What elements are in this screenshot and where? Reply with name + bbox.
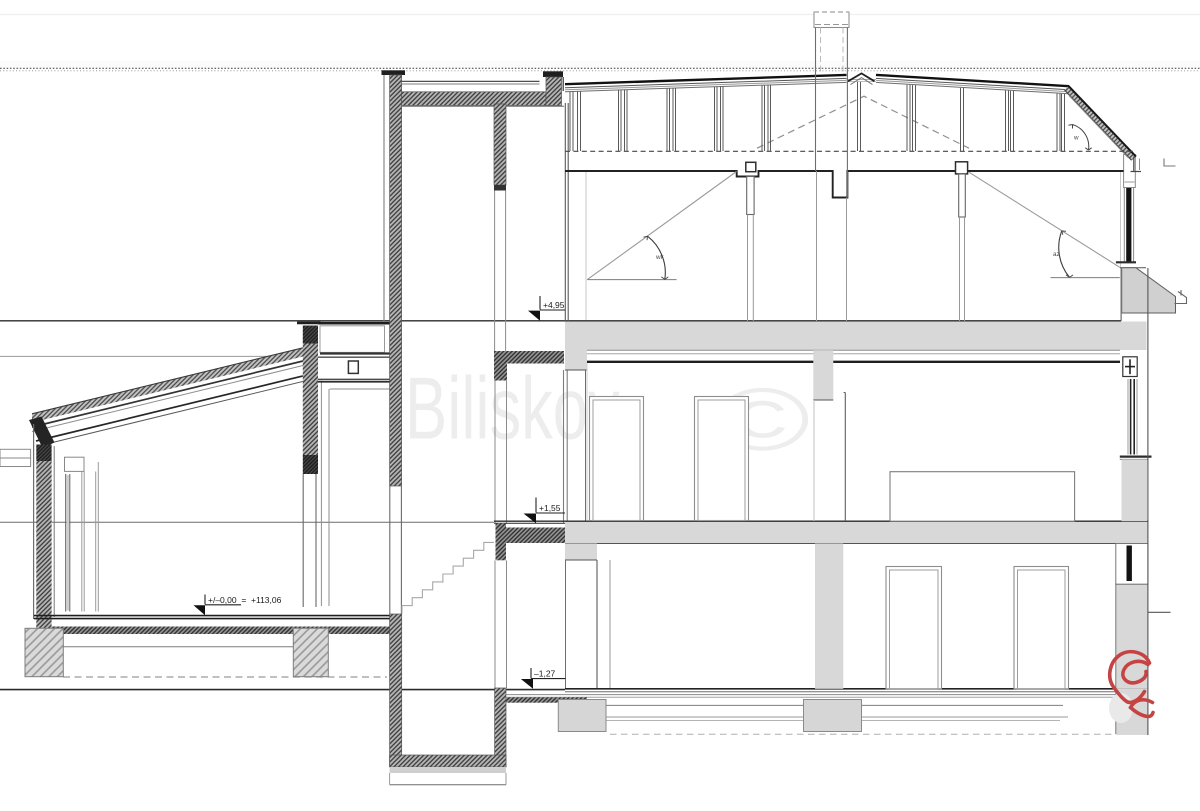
svg-text:az: az (1053, 251, 1060, 258)
svg-text:+4,95: +4,95 (543, 300, 565, 310)
svg-text:+1,55: +1,55 (539, 503, 561, 513)
svg-text:w: w (1073, 135, 1079, 142)
svg-text:+/–0,00 = +113,06: +/–0,00 = +113,06 (208, 595, 282, 605)
svg-text:wk: wk (655, 254, 665, 261)
svg-text:Biliskov: Biliskov (405, 360, 620, 458)
svg-text:–1,27: –1,27 (534, 669, 556, 679)
